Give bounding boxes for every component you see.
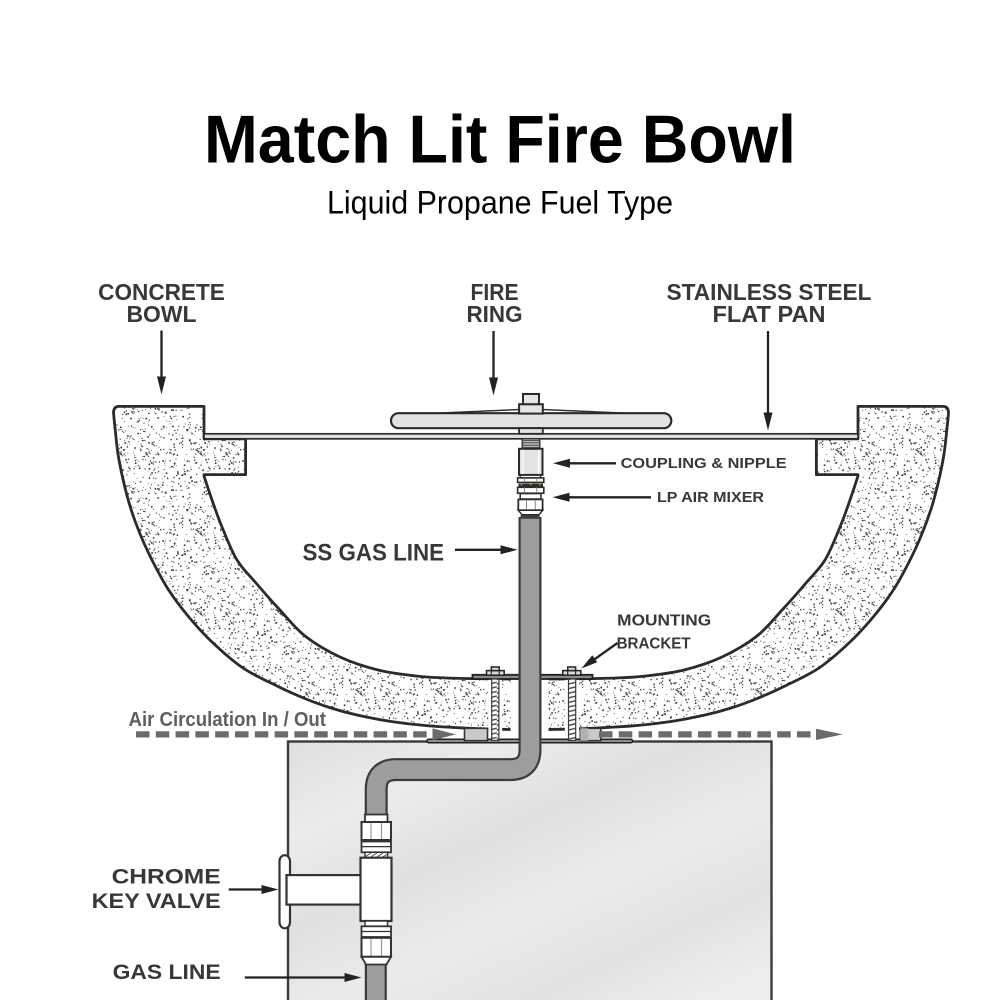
svg-text:SS GAS LINE: SS GAS LINE — [303, 540, 445, 567]
svg-text:CHROME: CHROME — [112, 866, 221, 889]
svg-text:BOWL: BOWL — [127, 301, 197, 327]
svg-text:GAS LINE: GAS LINE — [113, 961, 221, 984]
svg-text:COUPLING & NIPPLE: COUPLING & NIPPLE — [621, 456, 787, 472]
svg-text:FLAT PAN: FLAT PAN — [713, 301, 826, 327]
svg-text:Liquid Propane Fuel Type: Liquid Propane Fuel Type — [327, 185, 673, 221]
svg-text:KEY VALVE: KEY VALVE — [92, 890, 221, 913]
svg-text:MOUNTING: MOUNTING — [617, 613, 711, 630]
svg-text:LP AIR MIXER: LP AIR MIXER — [657, 490, 765, 506]
svg-text:Air Circulation In / Out: Air Circulation In / Out — [129, 709, 327, 731]
svg-text:Match Lit Fire Bowl: Match Lit Fire Bowl — [204, 102, 796, 178]
svg-text:RING: RING — [467, 301, 523, 327]
svg-text:BRACKET: BRACKET — [617, 636, 691, 653]
